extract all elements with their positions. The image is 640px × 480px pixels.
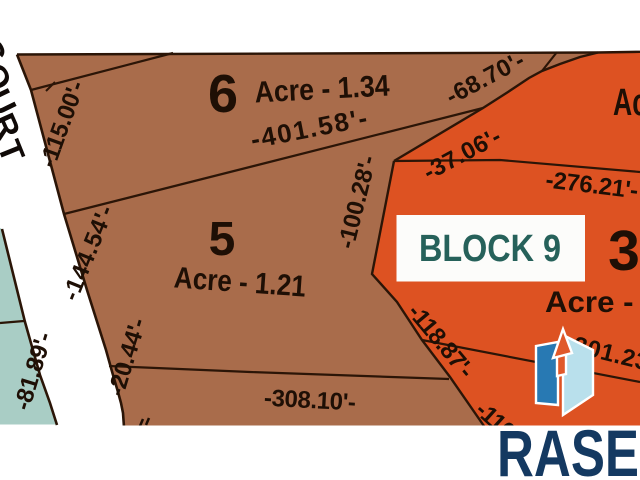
svg-text:RASE: RASE (497, 416, 639, 480)
svg-text:5: 5 (209, 213, 236, 266)
svg-text:3: 3 (608, 219, 640, 283)
svg-text:-308.10'-: -308.10'- (263, 385, 356, 417)
svg-text:Acre - 1.06: Acre - 1.06 (545, 286, 640, 319)
svg-text:BLOCK 9: BLOCK 9 (419, 228, 561, 270)
svg-text:Acre - 1.34: Acre - 1.34 (254, 69, 391, 109)
svg-text:Ac: Ac (613, 82, 640, 124)
svg-text:6: 6 (208, 64, 238, 124)
